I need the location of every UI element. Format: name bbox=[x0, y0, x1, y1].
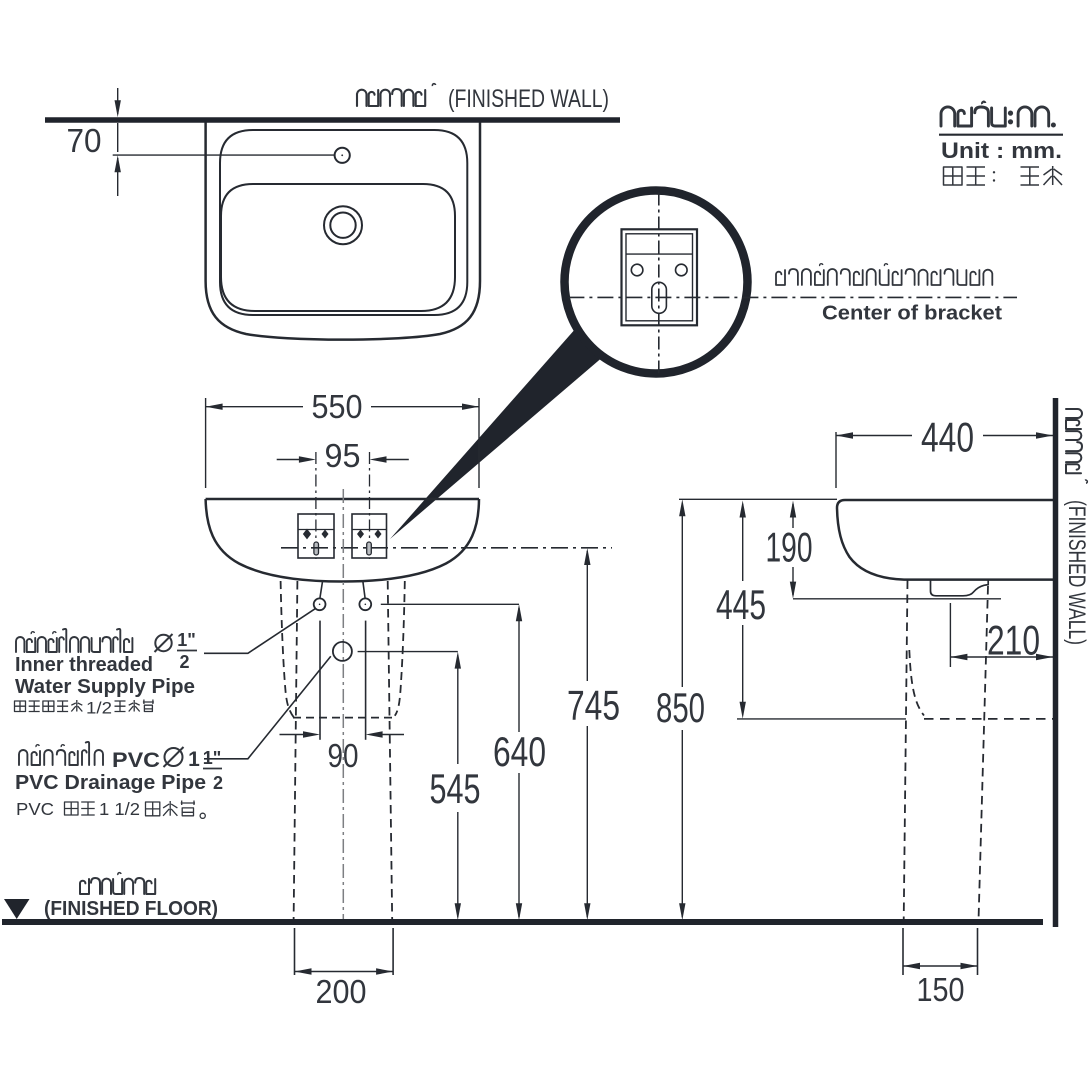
svg-text:545: 545 bbox=[430, 765, 481, 812]
svg-text:850: 850 bbox=[656, 684, 705, 731]
svg-text:210: 210 bbox=[987, 617, 1040, 664]
svg-text:(FINISHED WALL): (FINISHED WALL) bbox=[448, 85, 609, 113]
svg-text:(FINISHED FLOOR): (FINISHED FLOOR) bbox=[44, 898, 218, 920]
svg-text:95: 95 bbox=[325, 437, 361, 474]
svg-text:Center of bracket: Center of bracket bbox=[822, 303, 1002, 325]
svg-text:190: 190 bbox=[766, 524, 813, 571]
svg-text:200: 200 bbox=[316, 973, 367, 1010]
svg-text:745: 745 bbox=[567, 682, 620, 729]
svg-text:Water Supply Pipe: Water Supply Pipe bbox=[15, 675, 195, 698]
svg-text:640: 640 bbox=[493, 728, 546, 775]
svg-text:PVC Drainage Pipe: PVC Drainage Pipe bbox=[15, 771, 206, 794]
svg-text:1/2: 1/2 bbox=[86, 699, 112, 718]
svg-text:PVC: PVC bbox=[16, 799, 54, 819]
svg-text:150: 150 bbox=[917, 971, 965, 1008]
svg-text:2: 2 bbox=[179, 652, 189, 672]
svg-text:Unit : mm.: Unit : mm. bbox=[941, 138, 1062, 163]
svg-text:1 1/2: 1 1/2 bbox=[99, 799, 140, 819]
svg-text:1": 1" bbox=[177, 630, 196, 650]
svg-text:PVC: PVC bbox=[112, 749, 160, 772]
svg-text:2: 2 bbox=[213, 773, 223, 793]
svg-text:1: 1 bbox=[188, 748, 200, 771]
svg-text:(FINISHED WALL): (FINISHED WALL) bbox=[1063, 500, 1090, 645]
svg-text:550: 550 bbox=[312, 388, 363, 425]
svg-text:70: 70 bbox=[67, 122, 102, 159]
svg-text:445: 445 bbox=[716, 581, 766, 628]
svg-text:440: 440 bbox=[921, 414, 974, 461]
svg-text:1": 1" bbox=[203, 748, 222, 768]
svg-text:90: 90 bbox=[328, 737, 359, 774]
svg-text:Inner threaded: Inner threaded bbox=[15, 653, 153, 676]
